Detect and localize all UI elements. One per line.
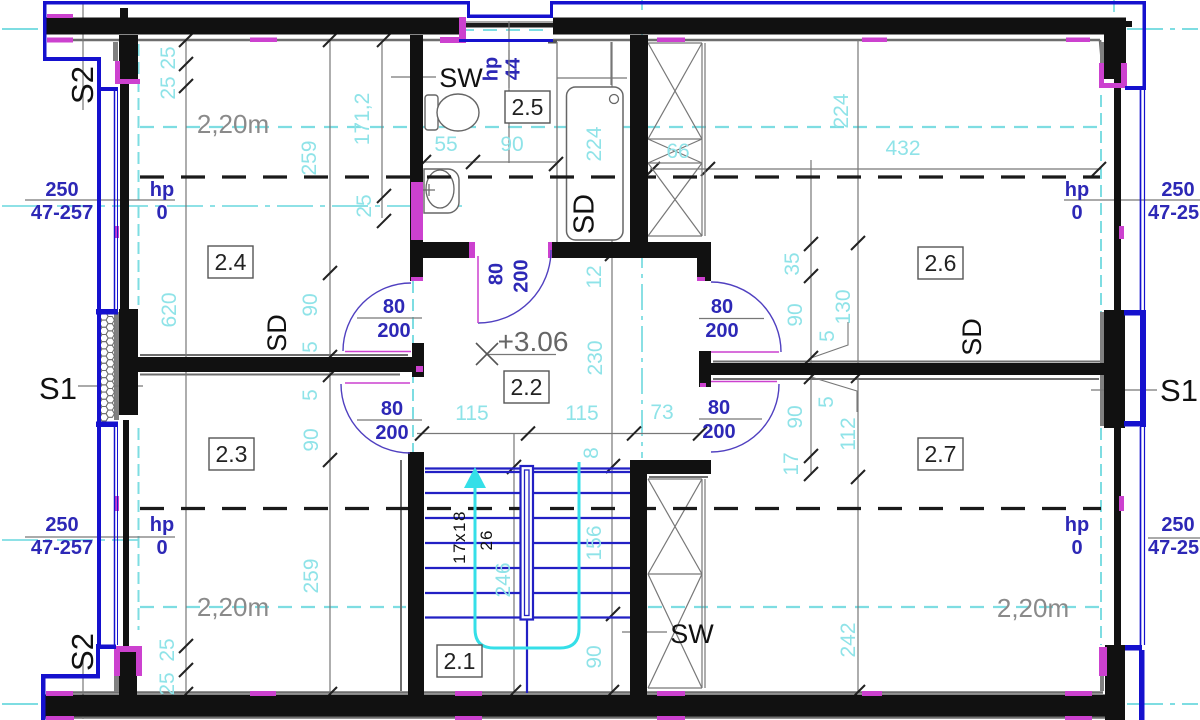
svg-text:S2: S2 [65, 633, 100, 671]
svg-text:432: 432 [885, 137, 920, 160]
svg-text:80: 80 [486, 263, 508, 285]
svg-text:2.5: 2.5 [512, 94, 544, 120]
svg-text:156: 156 [583, 525, 606, 560]
svg-text:200: 200 [705, 320, 738, 342]
svg-text:2.4: 2.4 [215, 249, 247, 275]
svg-text:250: 250 [1161, 179, 1194, 201]
svg-text:35: 35 [781, 252, 804, 275]
svg-text:hp: hp [1065, 514, 1089, 536]
svg-text:25: 25 [157, 46, 180, 69]
svg-text:26: 26 [477, 530, 496, 551]
svg-text:259: 259 [300, 558, 323, 593]
svg-text:SD: SD [262, 314, 292, 352]
svg-text:0: 0 [1071, 537, 1082, 559]
svg-text:2.2: 2.2 [511, 374, 543, 400]
svg-text:250: 250 [1161, 514, 1194, 536]
svg-text:0: 0 [1071, 202, 1082, 224]
svg-text:2,20m: 2,20m [997, 593, 1069, 623]
svg-text:230: 230 [584, 340, 607, 375]
svg-text:12: 12 [583, 265, 606, 288]
svg-text:5: 5 [299, 389, 322, 401]
svg-text:115: 115 [455, 402, 488, 425]
svg-text:200: 200 [702, 421, 735, 443]
svg-text:S2: S2 [65, 66, 100, 104]
svg-text:5: 5 [816, 330, 839, 342]
svg-text:200: 200 [375, 422, 408, 444]
svg-text:2,20m: 2,20m [197, 109, 269, 139]
svg-text:SD: SD [957, 318, 987, 356]
svg-text:2.7: 2.7 [925, 441, 957, 467]
svg-text:47-257: 47-257 [1148, 537, 1200, 559]
svg-text:200: 200 [377, 320, 410, 342]
svg-text:90: 90 [784, 405, 807, 428]
svg-text:25: 25 [156, 638, 179, 661]
svg-text:250: 250 [45, 514, 78, 536]
svg-text:80: 80 [381, 398, 403, 420]
svg-text:2.6: 2.6 [925, 250, 957, 276]
svg-text:224: 224 [583, 126, 606, 161]
svg-text:5: 5 [815, 396, 838, 408]
svg-text:2.3: 2.3 [216, 441, 248, 467]
svg-text:+3.06: +3.06 [498, 326, 569, 357]
svg-text:S1: S1 [1160, 373, 1198, 408]
svg-text:200: 200 [511, 259, 533, 292]
svg-text:90: 90 [500, 133, 523, 156]
svg-text:250: 250 [45, 179, 78, 201]
svg-text:90: 90 [583, 645, 606, 668]
svg-text:259: 259 [298, 140, 321, 175]
svg-text:25: 25 [353, 194, 376, 217]
svg-text:5: 5 [299, 341, 322, 353]
svg-text:130: 130 [832, 289, 855, 324]
svg-text:47-257: 47-257 [31, 537, 93, 559]
svg-text:242: 242 [837, 622, 860, 657]
svg-text:2.1: 2.1 [444, 648, 476, 674]
svg-text:hp: hp [481, 57, 503, 81]
svg-text:hp: hp [1065, 179, 1089, 201]
svg-text:44: 44 [503, 57, 525, 80]
svg-text:25: 25 [157, 76, 180, 99]
svg-text:SW: SW [439, 63, 483, 93]
svg-text:66: 66 [666, 140, 689, 163]
svg-text:80: 80 [708, 397, 730, 419]
svg-text:S1: S1 [39, 371, 77, 406]
svg-text:SW: SW [670, 619, 714, 649]
svg-text:171,2: 171,2 [351, 93, 374, 146]
svg-text:90: 90 [299, 293, 322, 316]
svg-text:90: 90 [300, 428, 323, 451]
svg-text:47-257: 47-257 [1148, 202, 1200, 224]
svg-text:17: 17 [780, 452, 803, 475]
svg-text:8: 8 [580, 447, 603, 459]
svg-text:0: 0 [156, 537, 167, 559]
svg-text:25: 25 [156, 672, 179, 695]
svg-text:112: 112 [837, 417, 860, 450]
svg-text:17x18: 17x18 [450, 510, 469, 564]
svg-text:246: 246 [492, 562, 515, 597]
svg-text:2,20m: 2,20m [197, 592, 269, 622]
svg-text:115: 115 [565, 402, 598, 425]
svg-text:0: 0 [156, 202, 167, 224]
svg-text:620: 620 [158, 292, 181, 327]
svg-text:224: 224 [830, 93, 853, 128]
svg-text:55: 55 [434, 133, 457, 156]
svg-text:hp: hp [150, 179, 174, 201]
svg-text:SD: SD [569, 194, 601, 234]
svg-text:hp: hp [150, 514, 174, 536]
svg-text:73: 73 [650, 401, 673, 424]
svg-text:90: 90 [784, 303, 807, 326]
svg-text:47-257: 47-257 [31, 202, 93, 224]
svg-text:80: 80 [711, 296, 733, 318]
svg-text:80: 80 [383, 296, 405, 318]
